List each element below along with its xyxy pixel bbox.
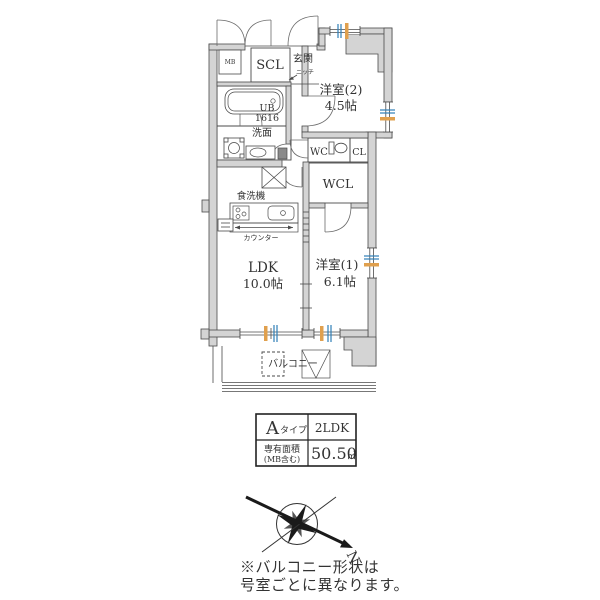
wall-hall-west bbox=[286, 86, 291, 144]
balcony-label: バルコニー bbox=[268, 358, 318, 370]
wall-nub-a bbox=[201, 329, 209, 339]
wall-corner-bottomright bbox=[344, 337, 376, 366]
walls bbox=[201, 28, 392, 366]
counter-label: カウンター bbox=[244, 233, 279, 242]
layout-type: 2LDK bbox=[315, 421, 350, 435]
wall-south-a bbox=[209, 330, 240, 337]
wall-right-upper bbox=[384, 28, 392, 102]
wall-south-c bbox=[340, 330, 368, 337]
wall-top-left bbox=[209, 44, 245, 50]
floor-plan-svg: MB SCL 玄関 ニッチ UB 1616 洗面 洋室(2) 4.5帖 WC C… bbox=[0, 0, 600, 600]
compass-arrowhead bbox=[340, 539, 353, 548]
room1-name-label: 洋室(1) bbox=[316, 257, 359, 272]
note-line2: 号室ごとに異なります。 bbox=[240, 576, 409, 594]
senmen-label: 洗面 bbox=[252, 127, 272, 139]
scl-label: SCL bbox=[256, 58, 284, 73]
compass-cross-line bbox=[262, 497, 336, 552]
entrance-door-arc bbox=[288, 16, 318, 46]
fixtures bbox=[218, 50, 347, 232]
room2-name-label: 洋室(2) bbox=[320, 82, 363, 97]
room2-size-label: 4.5帖 bbox=[325, 98, 357, 113]
info-table: A タイプ 2LDK 専有面積 (MB含む) 50.50 ㎡ bbox=[256, 414, 357, 466]
ldk-name-label: LDK bbox=[248, 260, 279, 276]
wall-wcl-south-a bbox=[308, 203, 325, 208]
water-heater bbox=[278, 148, 287, 159]
window-room2-east bbox=[380, 102, 395, 132]
mb-label: MB bbox=[225, 59, 236, 66]
floorplan-page: MB SCL 玄関 ニッチ UB 1616 洗面 洋室(2) 4.5帖 WC C… bbox=[0, 0, 600, 600]
wall-south-b bbox=[302, 330, 314, 337]
mb-door-arc-right bbox=[245, 20, 271, 46]
area-label-line2: (MB含む) bbox=[264, 454, 300, 464]
ldk-size-label: 10.0帖 bbox=[243, 276, 283, 291]
note-line1: ※バルコニー形状は bbox=[240, 558, 379, 576]
wcl-door-arc bbox=[325, 206, 351, 232]
toilet-tank bbox=[329, 142, 334, 154]
compass: N bbox=[246, 497, 362, 567]
wall-hall-room2-b bbox=[302, 126, 308, 132]
ub-label-line2: 1616 bbox=[255, 113, 279, 124]
window-room1-east bbox=[364, 248, 379, 278]
wall-ldk-room1 bbox=[303, 162, 309, 330]
note: ※バルコニー形状は 号室ごとに異なります。 bbox=[240, 558, 409, 594]
dishwasher-label: 食洗機 bbox=[237, 190, 266, 202]
area-label-line1: 専有面積 bbox=[264, 443, 300, 455]
genkan-label: 玄関 bbox=[293, 52, 313, 65]
cl-label: CL bbox=[352, 147, 366, 158]
wall-right-mid bbox=[368, 132, 376, 248]
wcl-label: WCL bbox=[323, 176, 354, 191]
room1-size-label: 6.1帖 bbox=[324, 274, 356, 289]
wall-left bbox=[209, 44, 217, 346]
wall-wcl-south-b bbox=[351, 203, 368, 208]
window-room1-south bbox=[314, 325, 340, 342]
window-ldk-south bbox=[240, 325, 302, 342]
mb-door-arc-left bbox=[217, 20, 245, 46]
wall-room2-top-a bbox=[319, 28, 330, 34]
niche-label: ニッチ bbox=[296, 69, 314, 76]
compass-needle bbox=[246, 497, 349, 546]
wall-ub-north bbox=[217, 82, 291, 86]
area-unit: ㎡ bbox=[347, 451, 356, 462]
compass-main-star bbox=[277, 504, 317, 544]
wc-door-arc bbox=[290, 140, 308, 158]
small-fixture-box bbox=[218, 219, 233, 231]
wc-label: WC bbox=[310, 147, 328, 158]
toilet-bowl bbox=[335, 143, 347, 153]
type-suffix: タイプ bbox=[280, 425, 307, 436]
wall-wc-top bbox=[302, 132, 368, 138]
wall-nub-b bbox=[202, 200, 209, 212]
type-letter: A bbox=[265, 418, 280, 439]
wall-senmen-south bbox=[217, 160, 282, 167]
